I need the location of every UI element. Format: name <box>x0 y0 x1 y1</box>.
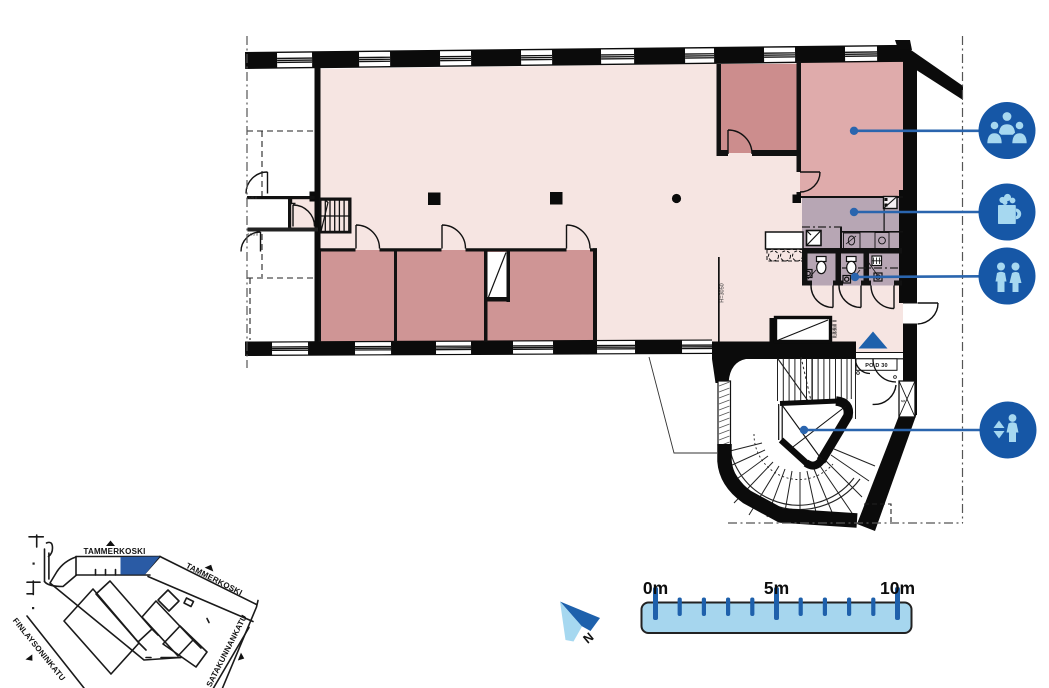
svg-text:H=3050: H=3050 <box>720 283 726 302</box>
svg-text:10m: 10m <box>880 578 915 598</box>
svg-text:4.US 8: 4.US 8 <box>246 196 257 200</box>
svg-text:0m: 0m <box>643 578 668 598</box>
svg-text:TAMMERKOSKI: TAMMERKOSKI <box>83 547 145 556</box>
svg-text:6: 6 <box>901 399 907 402</box>
svg-text:1550: 1550 <box>833 325 839 336</box>
svg-text:4.US 8: 4.US 8 <box>247 233 258 237</box>
svg-text:PO D 30: PO D 30 <box>865 363 888 369</box>
svg-text:5m: 5m <box>764 578 789 598</box>
